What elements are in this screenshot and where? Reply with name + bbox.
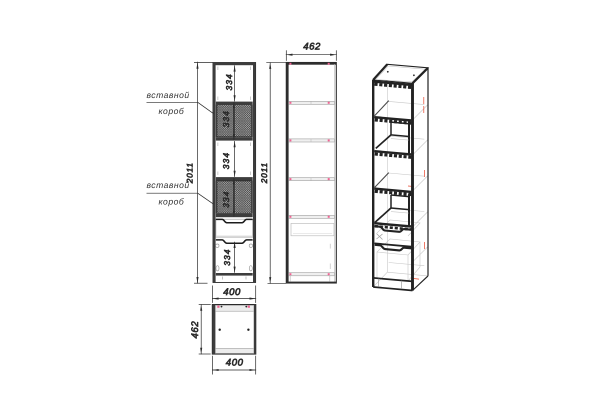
- svg-text:вставной: вставной: [147, 90, 190, 100]
- svg-text:334: 334: [221, 110, 231, 127]
- svg-text:462: 462: [303, 41, 321, 52]
- svg-text:334: 334: [224, 73, 234, 90]
- svg-text:334: 334: [221, 191, 231, 208]
- svg-text:334: 334: [222, 249, 232, 266]
- svg-text:2011: 2011: [260, 162, 269, 184]
- svg-text:334: 334: [221, 152, 231, 169]
- svg-text:400: 400: [226, 358, 244, 369]
- svg-text:400: 400: [223, 287, 241, 298]
- svg-text:462: 462: [190, 321, 201, 339]
- svg-text:вставной: вставной: [147, 180, 190, 190]
- svg-text:короб: короб: [159, 197, 185, 207]
- svg-text:короб: короб: [159, 106, 185, 116]
